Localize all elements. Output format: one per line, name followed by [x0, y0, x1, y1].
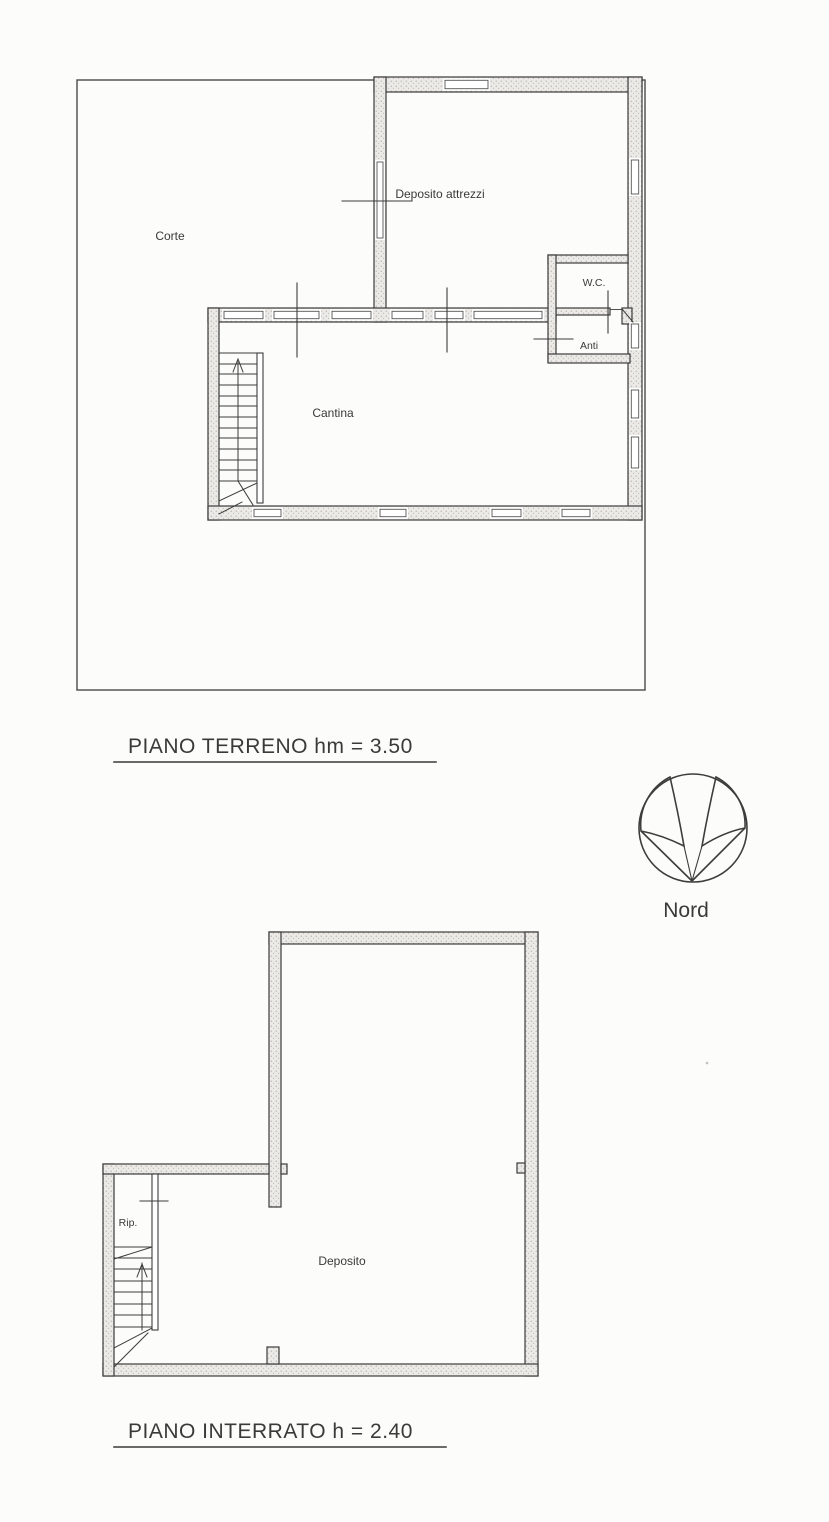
floor-plan-sheet: Corte Deposito attrezzi W.C. Anti Cantin… — [0, 0, 829, 1522]
basement-staircase — [114, 1174, 168, 1367]
room-label-corte: Corte — [155, 229, 185, 243]
room-label-cantina: Cantina — [312, 406, 354, 420]
basement-plan: Rip. Deposito PIANO INTERRATO h = 2.40 — [103, 932, 538, 1447]
room-label-anti: Anti — [580, 340, 598, 352]
ground-floor-windows — [222, 78, 641, 519]
compass-label: Nord — [663, 899, 709, 922]
basement-title: PIANO INTERRATO h = 2.40 — [128, 1420, 413, 1443]
room-label-deposito: Deposito — [318, 1254, 366, 1268]
ground-floor-walls — [208, 77, 642, 520]
ground-floor-staircase — [219, 353, 263, 514]
ground-floor-title: PIANO TERRENO hm = 3.50 — [128, 735, 413, 758]
floor-plan-drawing: Corte Deposito attrezzi W.C. Anti Cantin… — [0, 0, 829, 1522]
ground-floor-plan: Corte Deposito attrezzi W.C. Anti Cantin… — [77, 77, 645, 762]
room-label-wc: W.C. — [583, 277, 606, 289]
room-label-rip: Rip. — [119, 1217, 138, 1229]
courtyard-boundary — [77, 80, 645, 690]
north-compass-icon — [639, 774, 747, 882]
basement-walls — [103, 932, 538, 1376]
room-label-deposito-attrezzi: Deposito attrezzi — [395, 187, 484, 201]
scan-speck — [706, 1062, 709, 1065]
